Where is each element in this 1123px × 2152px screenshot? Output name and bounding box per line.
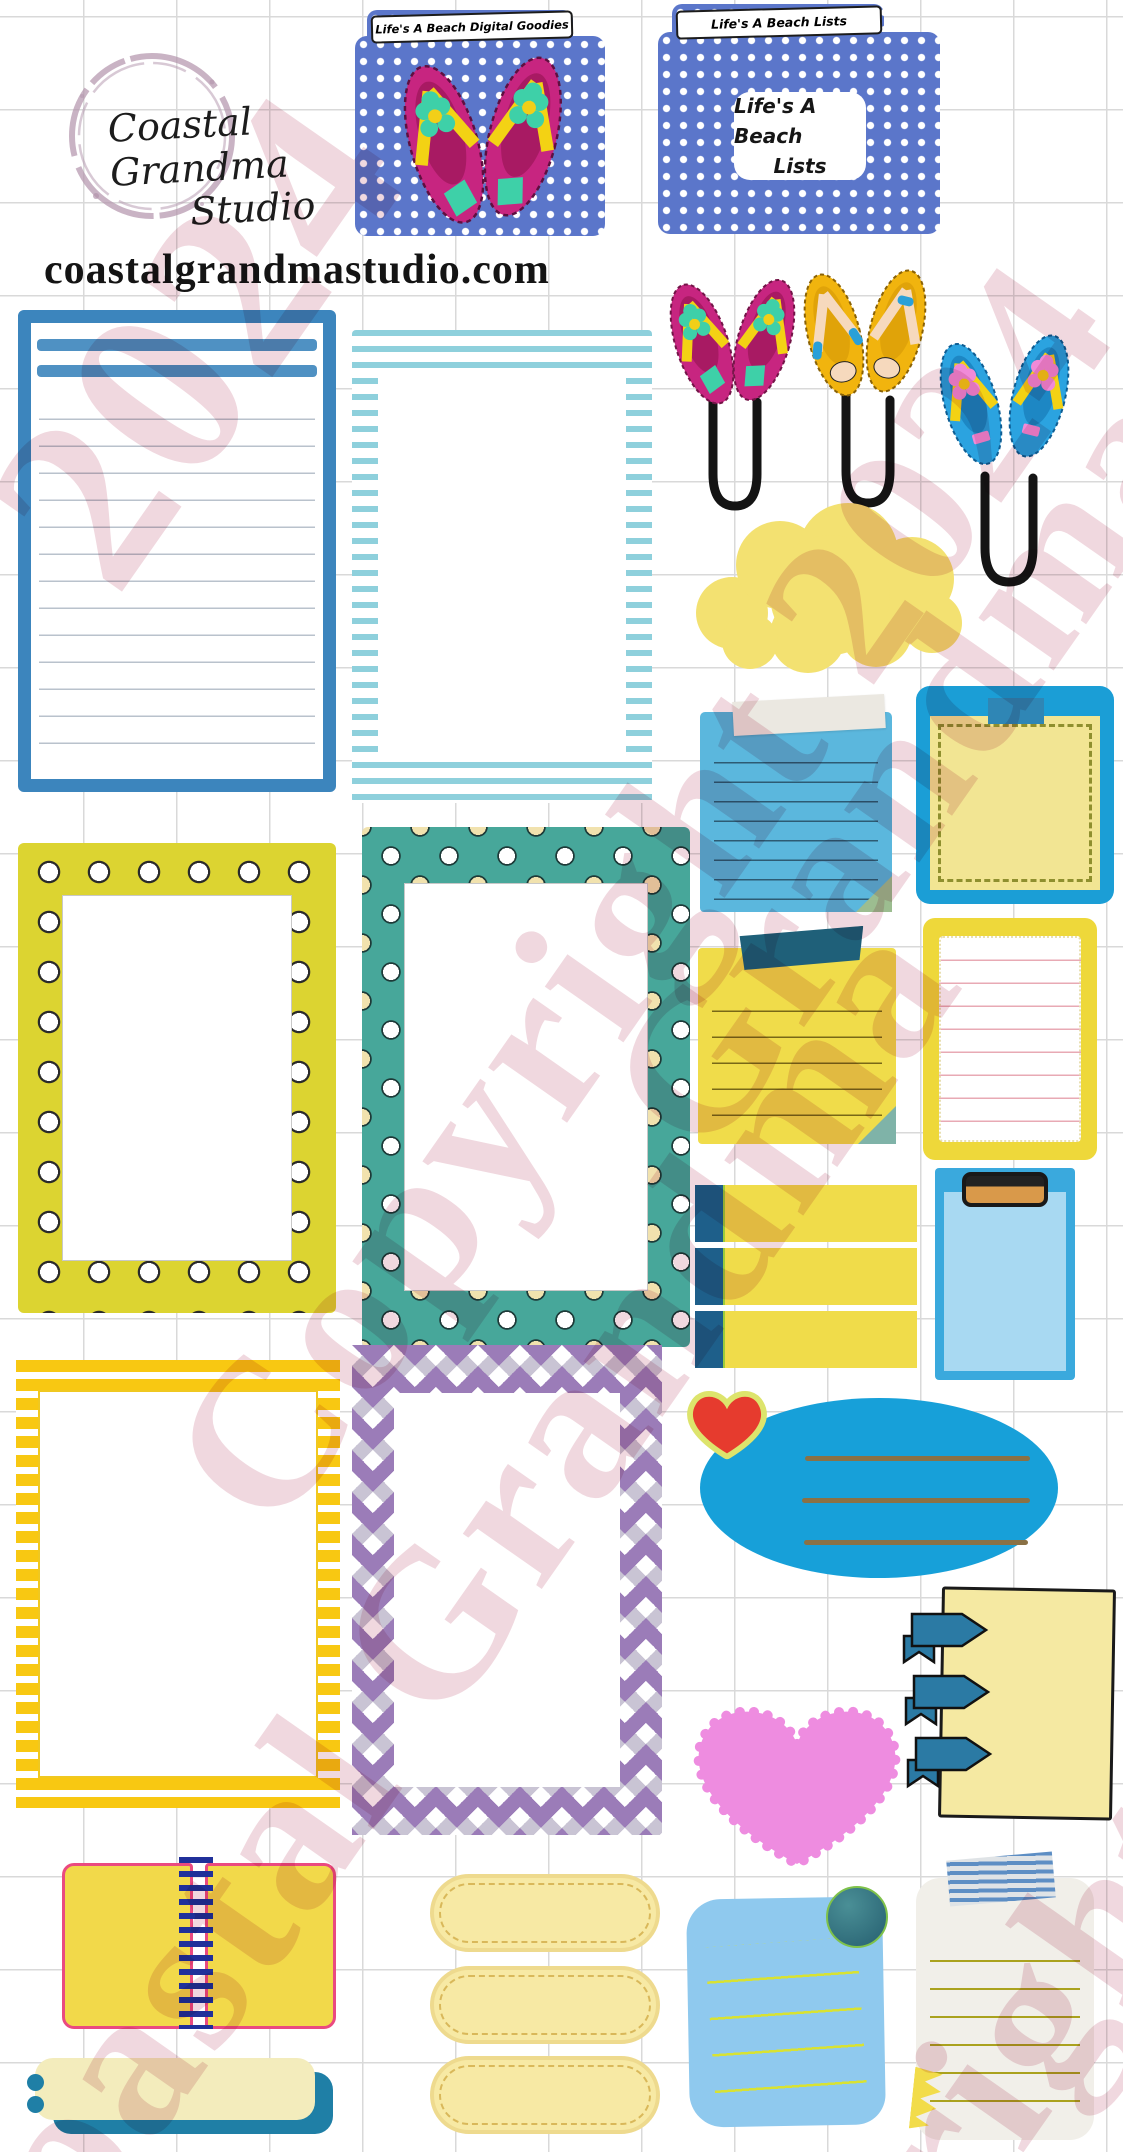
clipart-sheet: Coastal Grandma Studio coastalgrandmastu… — [0, 0, 1123, 2152]
board-note-stitch-border — [938, 724, 1092, 882]
frame-note-yellow — [923, 918, 1097, 1160]
notepad-crayon-lines — [39, 393, 315, 769]
lace-heart-pink-icon — [672, 1692, 922, 1877]
website-text: coastalgrandmastudio.com — [44, 246, 550, 294]
flipflops-pair-pink-icon — [379, 42, 584, 234]
notebook-left-page — [62, 1863, 193, 2029]
clipboard-paper — [944, 1192, 1066, 1371]
notepad-polkadot-yellow — [18, 843, 336, 1313]
label-plate-dot-1 — [27, 2074, 44, 2091]
frame-note-paper — [939, 936, 1081, 1142]
oval-line-1 — [805, 1456, 1030, 1461]
list-strip-1 — [695, 1185, 917, 1242]
board-note-blue — [916, 686, 1114, 904]
folder-lists-center-line2: Lists — [774, 151, 827, 181]
label-plate-dot-2 — [27, 2096, 44, 2113]
oval-line-3 — [804, 1540, 1028, 1545]
notepad-stripes-teal — [352, 330, 652, 803]
folder-goodies: Life's A Beach Digital Goodies — [355, 10, 605, 236]
oval-line-2 — [802, 1498, 1030, 1503]
notebook-spiral-binding — [179, 1857, 213, 2029]
notepad-polkadot-yellow-paper — [62, 895, 292, 1261]
sticky-note-yellow — [698, 948, 896, 1144]
board-note-yellow-paper — [930, 716, 1100, 890]
notepad-stripes-teal-paper — [378, 374, 626, 759]
folder-lists-center-line1: Life's A Beach — [734, 91, 866, 151]
clipboard-clip — [962, 1172, 1048, 1207]
notepad-polkadot-teal — [362, 827, 690, 1347]
cloud-note-yellow-icon — [680, 495, 970, 675]
sticky-note-yellow-curl — [858, 1106, 896, 1144]
pill-label-2 — [430, 1966, 660, 2044]
clipboard-blue — [935, 1168, 1075, 1380]
note-blue-lines — [705, 1937, 868, 2105]
sticky-note-blue-curl — [856, 876, 892, 912]
folder-lists: Life's A Beach Lists Life's A Beach List… — [658, 4, 940, 234]
notepad-argyle-paper — [394, 1393, 620, 1787]
notepad-crayon-blue — [18, 310, 336, 792]
notepad-argyle-purple — [352, 1345, 662, 1835]
list-strip-3-tab — [695, 1311, 725, 1368]
folder-goodies-label-text: Life's A Beach Digital Goodies — [375, 17, 569, 36]
list-strip-3 — [695, 1311, 917, 1368]
list-strip-2-tab — [695, 1248, 725, 1305]
label-plate-cream — [35, 2058, 315, 2120]
note-cream-lines — [930, 1934, 1080, 2116]
folder-lists-tab-label: Life's A Beach Lists — [676, 5, 883, 39]
list-strip-1-tab — [695, 1185, 725, 1242]
crayon-line-top1 — [37, 339, 317, 351]
pill-label-3 — [430, 2056, 660, 2134]
heart-red-icon — [685, 1386, 769, 1464]
spiral-notebook-yellow — [62, 1857, 330, 2029]
pill-label-1 — [430, 1874, 660, 1952]
washi-tape-striped-blue — [946, 1851, 1056, 1906]
list-strip-2 — [695, 1248, 917, 1305]
folder-lists-tab-label-text: Life's A Beach Lists — [711, 13, 847, 32]
flipflop-clip-yellow-icon — [790, 245, 942, 537]
notepad-polkadot-teal-paper — [404, 883, 648, 1291]
folder-lists-center-label: Life's A Beach Lists — [734, 92, 866, 180]
note-cream-taped — [916, 1878, 1094, 2140]
crayon-line-top2 — [37, 365, 317, 377]
folder-goodies-label: Life's A Beach Digital Goodies — [371, 10, 574, 43]
sticky-note-blue-lines — [714, 744, 878, 900]
bookmark-flags-blue-icon — [898, 1608, 1003, 1793]
sticky-note-blue — [700, 712, 892, 912]
board-note-tape-blue — [988, 698, 1044, 724]
note-blue-teal-circle — [826, 1886, 888, 1948]
notepad-stripes-gold-paper — [38, 1390, 318, 1778]
notebook-right-page — [205, 1863, 336, 2029]
sticky-note-yellow-lines — [712, 986, 882, 1130]
notepad-stripes-gold — [16, 1360, 340, 1808]
brand-logo: Coastal Grandma Studio — [52, 28, 382, 236]
